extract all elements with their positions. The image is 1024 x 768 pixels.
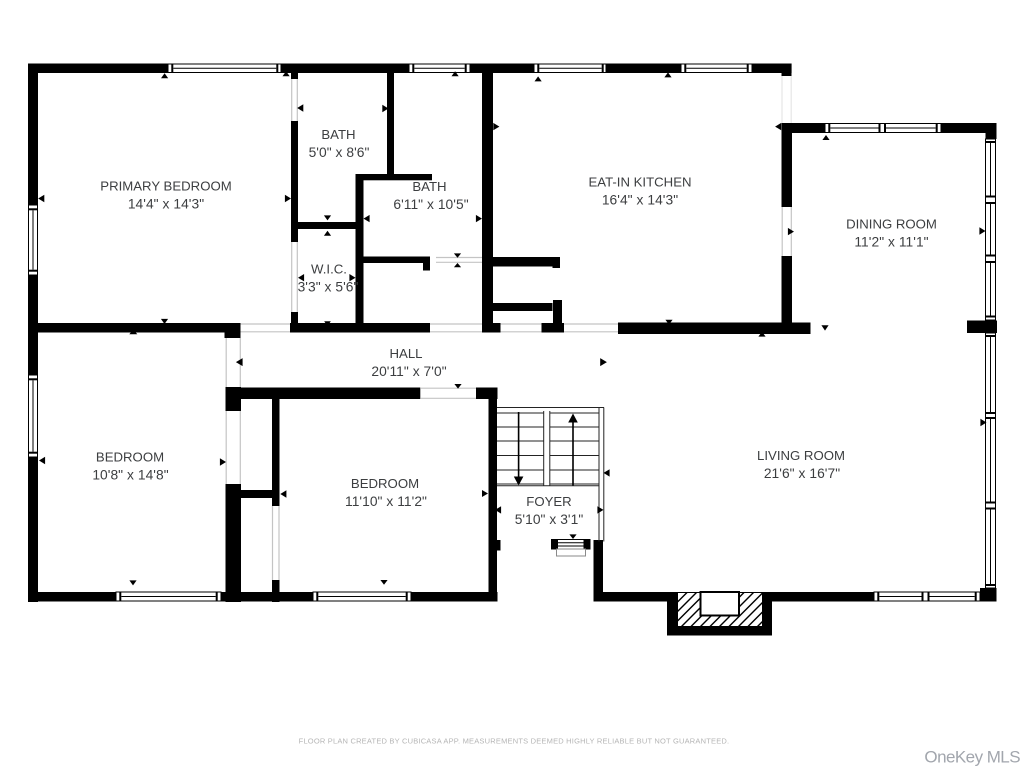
svg-text:BEDROOM: BEDROOM <box>351 476 419 491</box>
svg-text:BATH: BATH <box>321 127 355 142</box>
svg-text:EAT-IN KITCHEN: EAT-IN KITCHEN <box>588 175 691 190</box>
svg-text:20'11" x 7'0": 20'11" x 7'0" <box>371 364 446 379</box>
svg-text:BATH: BATH <box>412 179 446 194</box>
svg-text:16'4" x 14'3": 16'4" x 14'3" <box>602 193 678 208</box>
svg-text:11'2" x 11'1": 11'2" x 11'1" <box>854 235 928 250</box>
svg-text:DINING ROOM: DINING ROOM <box>846 217 937 232</box>
svg-text:5'0" x 8'6": 5'0" x 8'6" <box>309 145 370 160</box>
svg-text:W.I.C.: W.I.C. <box>311 262 347 277</box>
svg-text:10'8" x 14'8": 10'8" x 14'8" <box>92 468 168 483</box>
svg-text:5'10" x 3'1": 5'10" x 3'1" <box>515 512 584 527</box>
svg-text:21'6" x 16'7": 21'6" x 16'7" <box>764 466 840 481</box>
svg-text:OneKey MLS: OneKey MLS <box>924 748 1020 767</box>
svg-text:FLOOR PLAN CREATED BY CUBICASA: FLOOR PLAN CREATED BY CUBICASA APP. MEAS… <box>299 737 730 746</box>
svg-text:FOYER: FOYER <box>526 494 571 509</box>
svg-text:BEDROOM: BEDROOM <box>96 449 164 464</box>
svg-text:HALL: HALL <box>390 346 423 361</box>
svg-text:PRIMARY BEDROOM: PRIMARY BEDROOM <box>100 179 231 194</box>
svg-text:6'11" x 10'5": 6'11" x 10'5" <box>393 197 468 212</box>
svg-text:3'3" x 5'6": 3'3" x 5'6" <box>298 280 359 295</box>
svg-text:14'4" x 14'3": 14'4" x 14'3" <box>128 197 204 212</box>
svg-text:LIVING ROOM: LIVING ROOM <box>757 448 845 463</box>
svg-text:11'10" x 11'2": 11'10" x 11'2" <box>345 494 427 509</box>
